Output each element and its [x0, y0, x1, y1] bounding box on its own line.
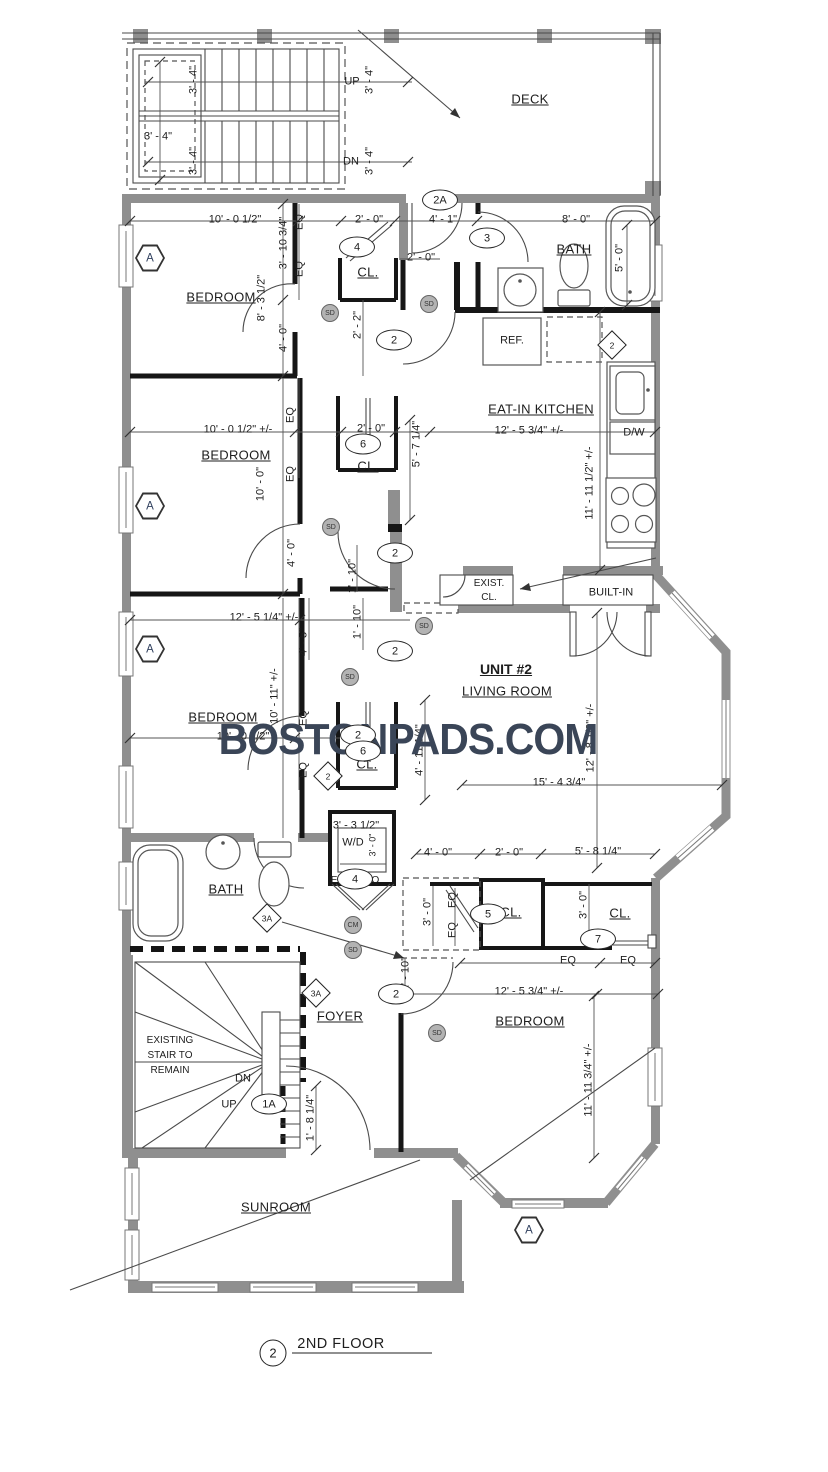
- dim-label: 1' - 8 1/4": [306, 1095, 317, 1141]
- callout-text: SD: [345, 674, 355, 681]
- washer-dryer-label: W/D: [342, 838, 363, 849]
- smoke-detector-marker: SD: [415, 617, 433, 635]
- dn-label: DN: [343, 157, 359, 168]
- callout-text: 4: [354, 241, 360, 253]
- dim-label: 10' - 0": [256, 467, 267, 501]
- room-label-bedroom-2: BEDROOM: [201, 449, 270, 462]
- callout-text: SD: [326, 524, 336, 531]
- existing-stair-note: EXISTING: [147, 1036, 194, 1046]
- eq-label: EQ: [560, 956, 576, 967]
- callout-text: SD: [348, 947, 358, 954]
- existing-stair-note: STAIR TO: [147, 1051, 192, 1061]
- callout-text: A: [135, 636, 165, 663]
- door-callout-4: 4: [337, 869, 373, 890]
- built-in-label: BUILT-IN: [589, 588, 633, 599]
- exist-closet-label: CL.: [481, 593, 497, 603]
- dim-label: 8' - 0": [562, 215, 590, 226]
- room-label-bedroom-4: BEDROOM: [495, 1015, 564, 1028]
- eq-label: EQ: [295, 261, 306, 277]
- eq-label: EQ: [295, 214, 306, 230]
- room-label-deck: DECK: [511, 93, 548, 106]
- sheet-number-circle: 2: [260, 1340, 287, 1367]
- sheet-number: 2: [269, 1346, 276, 1361]
- callout-text: CM: [348, 922, 359, 929]
- dim-label: 2' - 0": [495, 848, 523, 859]
- up-label: UP: [221, 1100, 236, 1111]
- dim-label: 4' - 5": [299, 628, 310, 656]
- door-callout-6: 6: [345, 741, 381, 762]
- callout-text: 5: [485, 908, 491, 920]
- room-label-bath-2: BATH: [209, 883, 244, 896]
- dim-label: 12' - 5 3/4" +/-: [495, 987, 564, 998]
- callout-text: 6: [360, 438, 366, 450]
- callout-text: 2: [392, 645, 398, 657]
- callout-text: 7: [595, 933, 601, 945]
- dim-label: 4' - 0": [279, 324, 290, 352]
- callout-text: 2: [393, 988, 399, 1000]
- closet-label: CL.: [357, 266, 378, 279]
- smoke-detector-marker: SD: [341, 668, 359, 686]
- room-label-bath-1: BATH: [557, 243, 592, 256]
- callout-text: 2: [355, 729, 361, 741]
- dim-label: 2' - 0": [355, 215, 383, 226]
- smoke-detector-marker: SD: [344, 941, 362, 959]
- callout-text: A: [514, 1217, 544, 1244]
- dim-label: 3' - 0": [423, 898, 434, 926]
- window-tag-a: A: [135, 636, 165, 663]
- door-callout-2a: 2A: [422, 190, 458, 211]
- exist-closet-label: EXIST.: [474, 579, 505, 589]
- door-callout-4: 4: [339, 237, 375, 258]
- door-callout-7: 7: [580, 929, 616, 950]
- window-tag-a: A: [135, 245, 165, 272]
- eq-label: EQ: [620, 956, 636, 967]
- door-callout-2: 2: [377, 543, 413, 564]
- ref-label: REF.: [500, 336, 524, 347]
- dim-label: 3' - 4": [365, 66, 376, 94]
- dim-label: 3' - 0": [579, 891, 590, 919]
- door-callout-6: 6: [345, 434, 381, 455]
- eq-label: EQ: [286, 407, 297, 423]
- smoke-detector-marker: SD: [420, 295, 438, 313]
- dishwasher-label: D/W: [623, 428, 644, 439]
- room-label-sunroom: SUNROOM: [241, 1201, 311, 1214]
- smoke-detector-marker: SD: [428, 1024, 446, 1042]
- eq-label: EQ: [286, 466, 297, 482]
- callout-text: 2: [392, 547, 398, 559]
- callout-text: 1A: [262, 1098, 275, 1110]
- dim-label: 4' - 0": [424, 848, 452, 859]
- dim-label: 3' - 4": [144, 132, 172, 143]
- room-label-bedroom-1: BEDROOM: [186, 291, 255, 304]
- dim-label: 3' - 4": [365, 147, 376, 175]
- dim-label: 11' - 11 1/2" +/-: [585, 446, 596, 519]
- carbon-monoxide-marker: CM: [344, 916, 362, 934]
- callout-text: 2: [319, 767, 338, 786]
- dim-label: 15' - 4 3/4": [533, 778, 585, 789]
- smoke-detector-marker: SD: [322, 518, 340, 536]
- dim-label: 10' - 0 1/2" +/-: [204, 425, 273, 436]
- callout-text: 3A: [258, 909, 277, 928]
- door-callout-2: 2: [376, 330, 412, 351]
- door-callout-2: 2: [378, 984, 414, 1005]
- dim-label: 12' - 5 3/4" +/-: [495, 426, 564, 437]
- window-tag-a: A: [135, 493, 165, 520]
- callout-text: 2A: [433, 194, 446, 206]
- callout-text: SD: [432, 1030, 442, 1037]
- unit-label: UNIT #2: [480, 662, 532, 676]
- dim-label: 4' - 0": [287, 539, 298, 567]
- room-label-living-room: LIVING ROOM: [462, 685, 552, 698]
- callout-text: 3: [484, 232, 490, 244]
- dim-label: 2' - 0": [407, 253, 435, 264]
- dim-label: 5' - 0": [615, 244, 626, 272]
- callout-text: 2: [391, 334, 397, 346]
- dim-label: 2' - 2": [353, 311, 364, 339]
- dim-label: 5' - 7 1/4": [412, 421, 423, 467]
- closet-label: CL.: [357, 460, 378, 473]
- callout-text: 4: [352, 873, 358, 885]
- dim-label: 10' - 0 1/2": [209, 215, 261, 226]
- eq-label: EQ: [448, 922, 459, 938]
- existing-stair-note: REMAIN: [151, 1066, 190, 1076]
- up-label: UP: [344, 77, 359, 88]
- window-tag-a: A: [514, 1217, 544, 1244]
- callout-text: 3A: [307, 984, 326, 1003]
- dim-label: 3' - 4": [189, 66, 200, 94]
- callout-text: 2: [603, 336, 622, 355]
- callout-text: A: [135, 493, 165, 520]
- dim-label: 5' - 8 1/4": [575, 847, 621, 858]
- room-label-kitchen: EAT-IN KITCHEN: [488, 403, 594, 416]
- dim-label: 1' - 10": [353, 605, 364, 639]
- room-label-foyer: FOYER: [317, 1010, 363, 1023]
- door-callout-5: 5: [470, 904, 506, 925]
- dim-label: 11' - 11 3/4" +/-: [584, 1043, 595, 1116]
- dim-label: 4' - 1": [429, 215, 457, 226]
- dim-label: 8' - 3 1/2": [257, 275, 268, 321]
- door-callout-2: 2: [377, 641, 413, 662]
- eq-label: EQ: [448, 892, 459, 908]
- sheet-title: 2ND FLOOR: [297, 1336, 385, 1352]
- callout-text: SD: [419, 623, 429, 630]
- floorplan-page: UP DN 3' - 4" 3' - 4" 3' - 4" 3' - 4" 3'…: [0, 0, 828, 1472]
- closet-label: CL.: [609, 907, 630, 920]
- dim-label: 3' - 3 1/2": [333, 821, 379, 832]
- dn-label: DN: [235, 1074, 251, 1085]
- callout-text: 6: [360, 745, 366, 757]
- dim-label: 3' - 10 3/4": [279, 217, 290, 269]
- door-callout-3: 3: [469, 228, 505, 249]
- door-callout-1a: 1A: [251, 1094, 287, 1115]
- dim-label: 3' - 0": [369, 834, 378, 857]
- callout-text: SD: [424, 301, 434, 308]
- smoke-detector-marker: SD: [321, 304, 339, 322]
- watermark: BOSTONPADS.COM: [219, 715, 598, 765]
- callout-text: A: [135, 245, 165, 272]
- dim-label: 12' - 5 1/4" +/-: [230, 613, 299, 624]
- dim-label: 3' - 4": [189, 147, 200, 175]
- dim-label: 1' - 10": [348, 559, 359, 593]
- callout-text: SD: [325, 310, 335, 317]
